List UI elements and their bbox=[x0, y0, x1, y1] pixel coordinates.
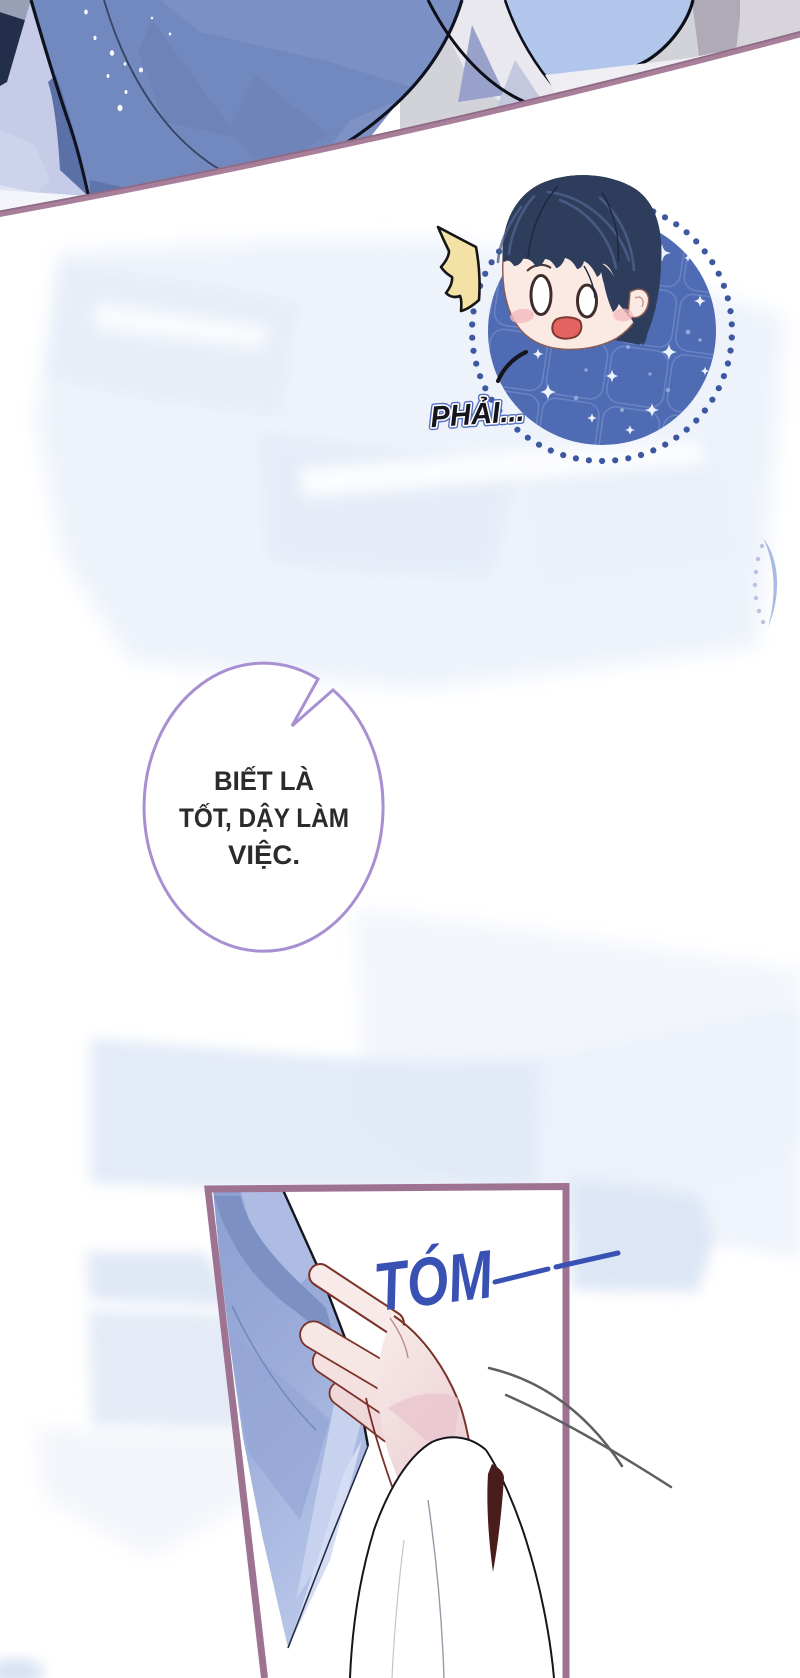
svg-text:TÓM: TÓM bbox=[370, 1236, 497, 1326]
svg-text:TỐT, DẬY LÀM: TỐT, DẬY LÀM bbox=[179, 801, 349, 833]
svg-text:BIẾT LÀ: BIẾT LÀ bbox=[214, 765, 314, 796]
svg-text:VIỆC.: VIỆC. bbox=[228, 839, 300, 870]
svg-text:PHẢI...: PHẢI... bbox=[429, 394, 525, 434]
